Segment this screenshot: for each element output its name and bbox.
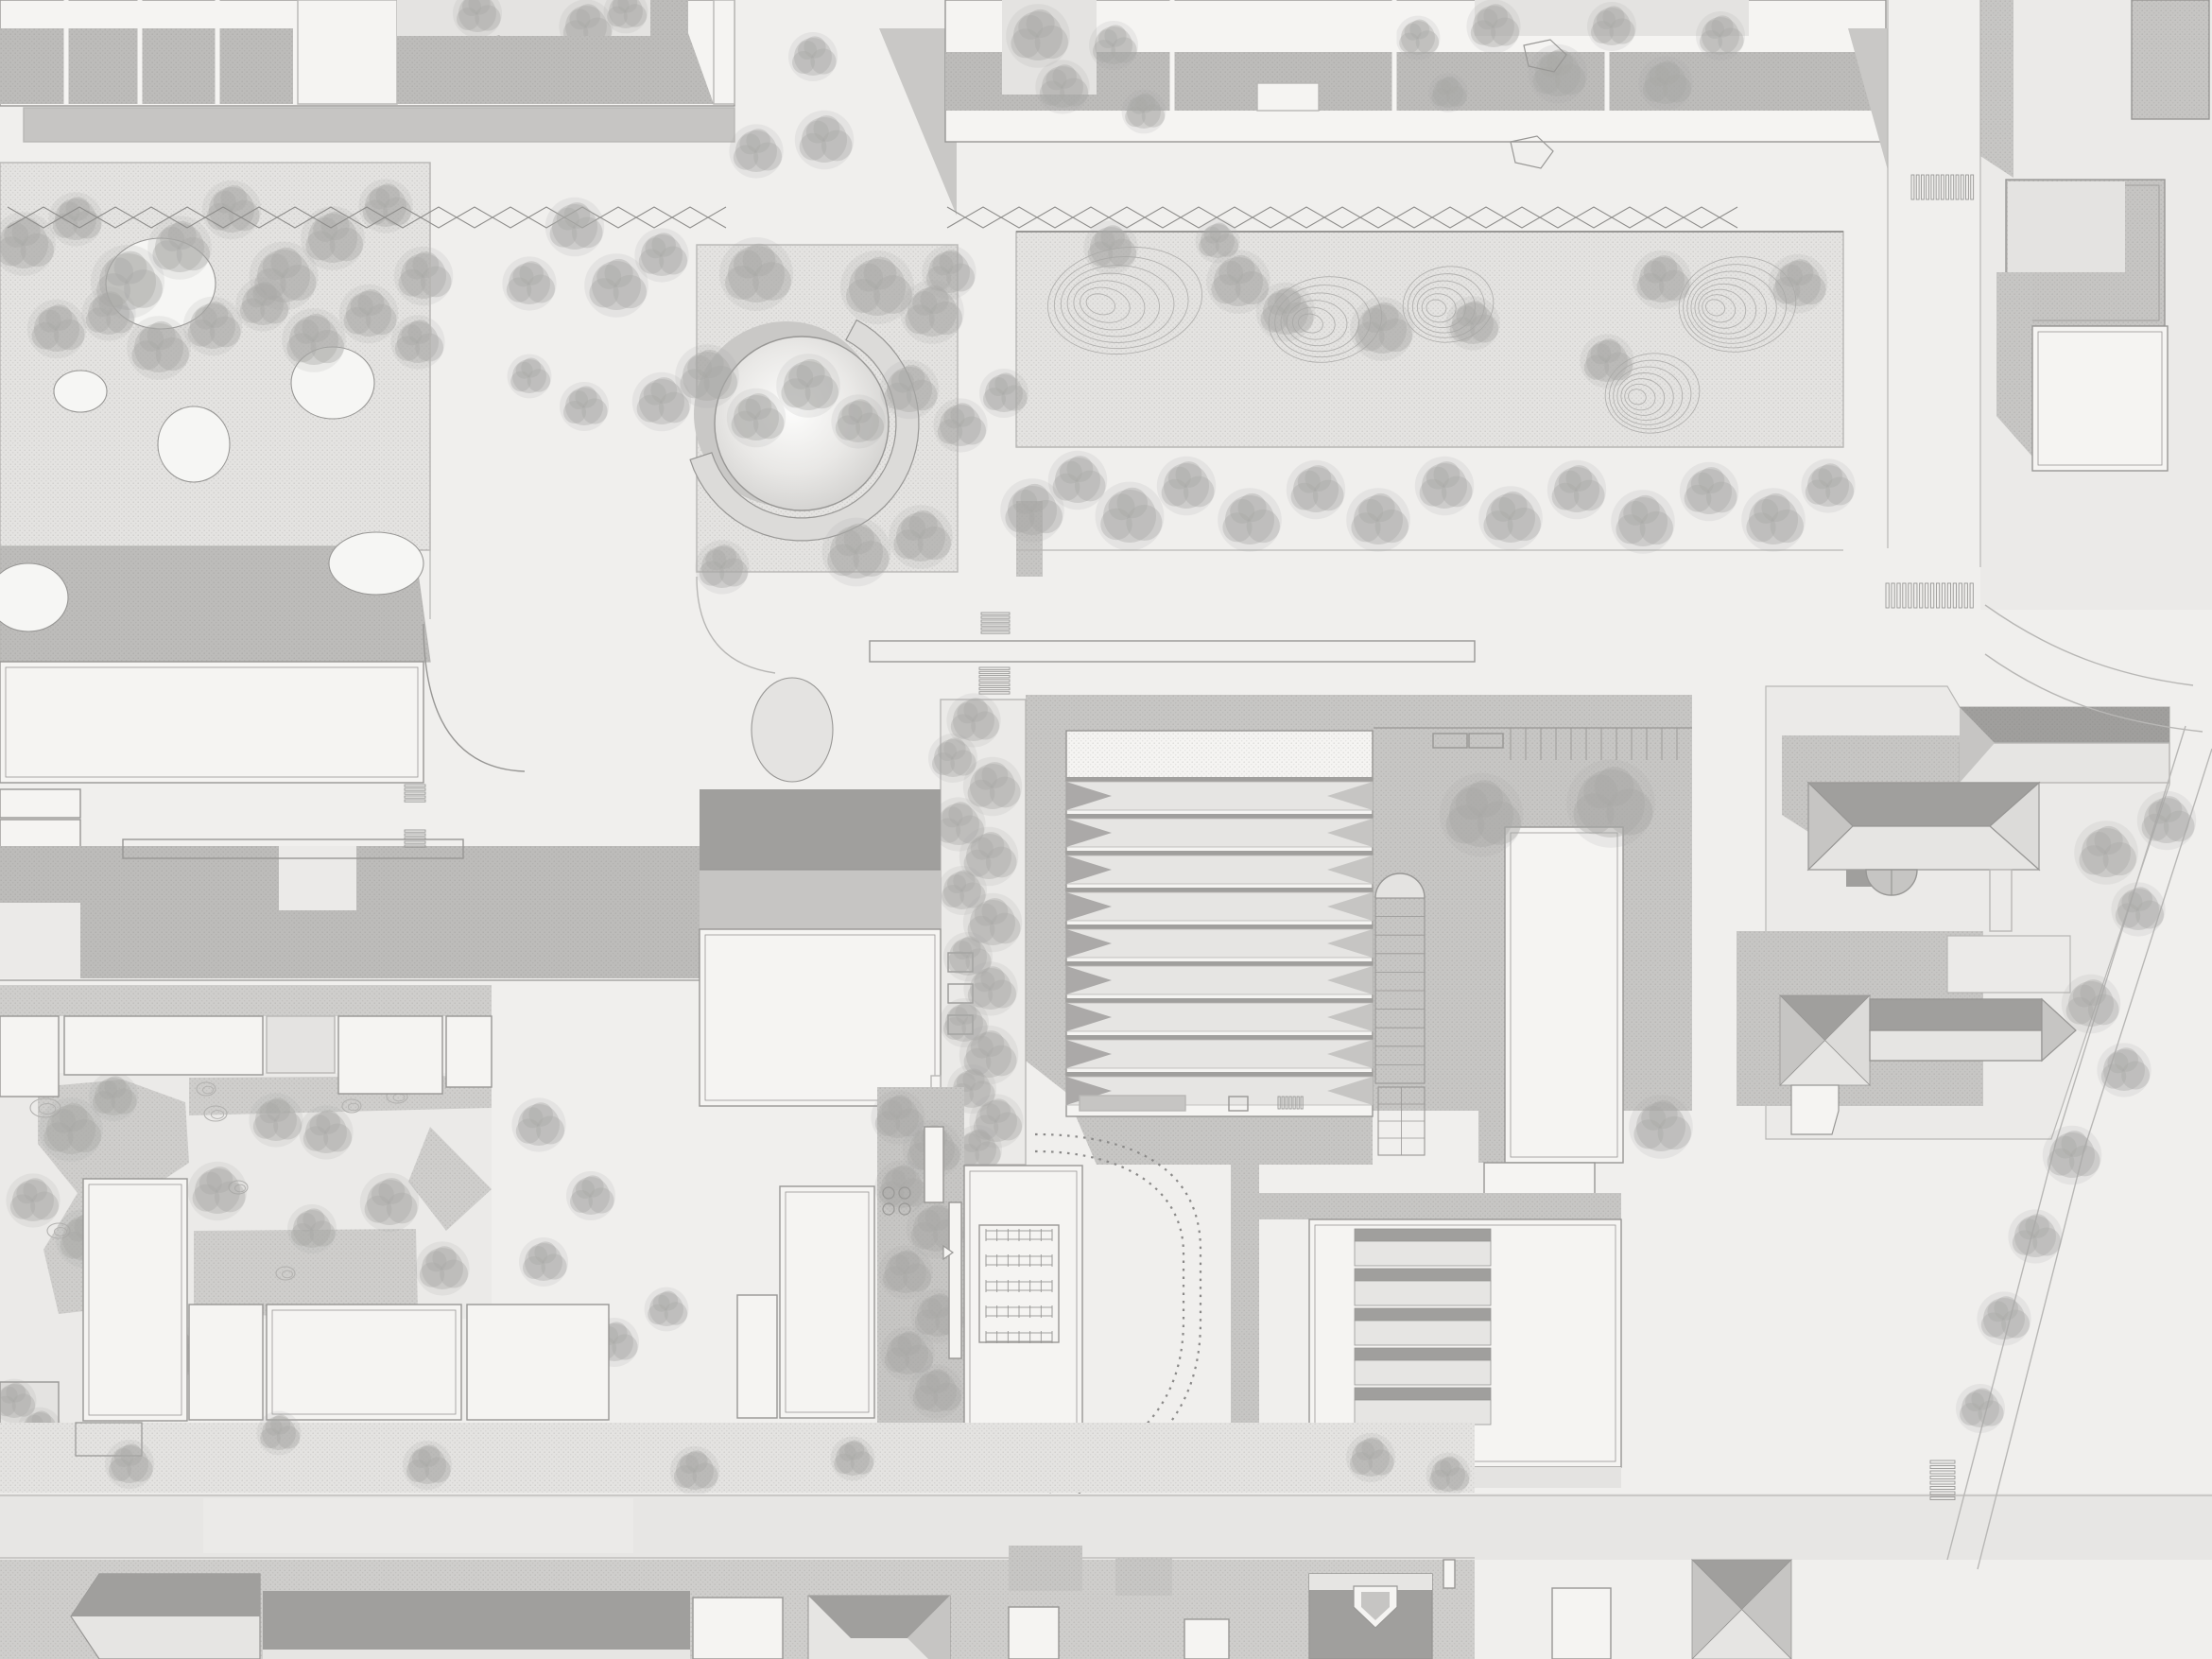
tree-canopy [734,251,762,279]
tree-canopy [974,971,994,992]
tree [1478,486,1543,550]
tree-canopy [1012,490,1037,514]
louver-top-band [1066,731,1373,777]
tree-canopy [971,1036,994,1059]
tree-canopy [979,1103,1000,1124]
tree [1350,297,1414,361]
tree-canopy [1649,65,1669,86]
tree-canopy [1362,308,1387,333]
louver-slat [1066,819,1373,847]
tree [1629,1095,1693,1159]
tree-canopy [425,1251,446,1271]
tree-canopy [942,806,962,827]
tree [1346,1433,1395,1482]
tree-canopy [1456,787,1488,820]
south-center-buildings-rect [964,1166,1082,1435]
tree-canopy [263,253,289,280]
tree [566,1171,615,1220]
tree [188,1162,247,1220]
tree-canopy [139,327,164,352]
tree [299,1105,353,1159]
louver-slat [1066,1040,1373,1068]
upper-left-garden-plaza-ellipse [54,371,107,412]
tree [1547,460,1606,519]
tree-canopy [1046,69,1066,90]
top-building-row-west-rect-texture [397,36,650,104]
top-right-block-rect [2032,326,2168,471]
long-white-slab-building-rect [0,820,80,848]
tree-canopy [2054,1136,2077,1159]
tree [979,369,1028,418]
villa-complex-rect [1960,743,2169,783]
tree-canopy [2107,1052,2128,1073]
tree [645,1287,689,1332]
louver-ridge [1066,1035,1373,1040]
tree [695,540,749,594]
lane-hedge-and-turning-curves-rect-texture [1231,1163,1259,1460]
tree-canopy [975,904,997,926]
long-white-slab-building-rect [0,789,80,818]
tree [390,315,444,369]
tree-canopy [1218,261,1243,285]
tree-canopy [569,9,590,29]
tree-canopy [294,320,319,344]
tree-canopy [1098,29,1117,48]
tree-canopy [1623,501,1648,526]
tree-canopy [512,266,533,286]
tree-canopy [92,296,112,317]
tree-canopy [39,310,61,333]
tree-canopy [836,529,862,556]
tree [394,247,453,305]
southwest-building-rows-rect [0,1016,59,1097]
bottom-building-row-rect [1009,1607,1059,1659]
tree-canopy [1597,10,1616,29]
top-right-block-rect [2008,181,2125,272]
tree-canopy [569,390,588,409]
tree [2062,975,2120,1033]
tree-canopy [1298,471,1321,493]
tree [105,1440,154,1489]
southwest-building-rows-rect [467,1305,609,1420]
tree [831,394,885,448]
pyramid-roof-pavilion [1780,995,1870,1085]
villa-complex-poly [1947,936,2070,993]
tree-canopy [1811,468,1832,489]
tree-canopy [1131,97,1148,114]
tree [1680,462,1738,521]
tree-canopy [16,1183,37,1203]
south-promenade [0,1411,1475,1497]
tree [1096,482,1165,551]
tree [788,32,838,81]
tree-canopy [1268,293,1290,316]
bottom-building-row-rect [693,1598,783,1659]
tree [1196,219,1240,264]
tree-canopy [1356,1442,1374,1460]
tree-canopy [1691,473,1714,495]
site-plan-page [0,0,2212,1659]
bottom-building-row-rect [1443,1560,1455,1588]
tree [1083,220,1137,274]
tree [1956,1384,2005,1433]
tree [235,277,289,331]
louver-slat [1066,966,1373,994]
rooflight-block [1355,1321,1491,1345]
tree [1440,773,1523,856]
top-building-row-middle-rect [1257,83,1319,111]
tree-canopy [199,1172,222,1195]
tree [1396,16,1441,60]
tree [1611,490,1675,554]
tree [1218,488,1282,552]
tree [1048,451,1107,510]
tree-canopy [372,1184,394,1206]
southwest-building-rows-rect [267,1016,335,1073]
tree-canopy [806,121,829,144]
tree [545,198,604,256]
louver-ridge [1066,851,1373,855]
tree-canopy [51,1109,76,1133]
tree-canopy [889,1254,909,1275]
tree-canopy [962,1133,981,1152]
tree [2097,1043,2151,1097]
tree [878,1245,932,1299]
tree [1157,457,1216,515]
central-promenade-rect [0,903,80,978]
tree-canopy [297,1213,316,1232]
striped-roof-building-rect-texture [1257,1193,1621,1219]
south-center-buildings-rect [949,1202,961,1358]
tree-canopy [1435,1460,1452,1478]
tree-canopy [1477,9,1497,29]
tree-canopy [841,404,862,424]
tree [933,398,987,452]
southwest-building-rows-rect [267,1305,461,1420]
tree [560,382,609,431]
tree [1445,296,1499,350]
tree [1428,73,1468,112]
tree-canopy [1,1387,18,1404]
upper-left-garden-plaza-ellipse [158,406,230,482]
bottom-building-row-rect-texture [1009,1546,1082,1591]
tree-canopy [351,295,373,318]
tree-canopy [1109,493,1135,520]
tree [889,505,953,569]
tree [880,360,939,419]
tree-canopy [644,383,666,406]
tree [831,1437,875,1481]
tree-canopy [919,1374,940,1394]
tree-canopy [401,324,422,345]
tree [511,1097,565,1151]
cross-hip-roof-building [1692,1560,1791,1659]
tree-canopy [1426,467,1449,490]
tree [2137,791,2196,850]
tree-canopy [949,1007,968,1026]
tree [1426,1453,1471,1497]
tree [1006,4,1070,68]
tree-canopy [943,407,964,428]
tree-canopy [4,223,28,248]
bottom-building-row-rect [263,1591,690,1650]
hip-roof-building [808,1596,950,1659]
southwest-building-rows-rect [338,1016,442,1094]
tree-canopy [1583,774,1617,808]
tree [634,228,688,282]
villa-complex-rect-texture [1960,707,2169,743]
louver-slat [1066,1003,1373,1031]
bottom-building-row-rect [263,1650,690,1659]
tree [2043,1126,2101,1184]
tree-canopy [214,191,236,214]
tree-canopy [59,201,79,222]
tree [719,237,793,311]
tree-canopy [680,1455,699,1474]
louver-slat [1066,782,1373,810]
southwest-building-rows-rect [64,1016,263,1075]
top-building-row-west-rect [298,0,397,104]
tree-canopy [2086,832,2111,856]
tree-canopy [653,1295,670,1312]
east-slab-building-rect [1505,827,1623,1163]
tree [1529,44,1587,103]
villa-complex-poly [1791,1085,1839,1134]
tree-canopy [687,355,712,380]
tree-canopy [1965,1392,1984,1411]
tree [6,1173,60,1227]
tree-canopy [516,362,533,379]
top-building-row-west-rect [714,0,734,104]
tree-canopy [1018,15,1043,40]
tree [1633,251,1691,309]
tree [360,1173,419,1232]
south-street-rect [203,1498,633,1553]
tree [127,316,191,380]
tree [776,354,840,418]
tree-canopy [406,257,428,280]
tree [1580,334,1633,388]
tree [1587,2,1636,51]
tree [822,518,891,587]
tree-canopy [412,1449,431,1468]
tree [287,1204,337,1253]
louver-hall-block-rect [1080,1096,1185,1111]
south-center-buildings-rect [780,1186,874,1418]
rooflight-block [1355,1241,1491,1266]
tree [1466,0,1520,54]
rooflight-bar [1355,1348,1491,1360]
tree-canopy [891,371,914,393]
tree [282,308,346,372]
tree [89,1072,138,1121]
tree-canopy [1491,497,1515,522]
bottom-building-row-rect-texture [1115,1558,1172,1596]
tree-canopy [1641,1106,1666,1131]
villa-complex-rect [1870,999,2042,1030]
tree-canopy [1436,79,1451,95]
tree-canopy [1060,461,1082,484]
tree-canopy [839,1444,856,1461]
tree-canopy [1780,265,1803,287]
tree [1638,56,1692,110]
tree [1415,457,1474,515]
tree-canopy [921,1298,942,1319]
tree [403,1441,452,1490]
central-promenade-rect [279,846,356,910]
southwest-roof-building-rect [700,929,941,1106]
tree-canopy [2149,802,2171,824]
top-building-row-west-rect [24,108,734,142]
tree [2008,1209,2062,1263]
tree [2111,882,2165,936]
louver-slat [1066,929,1373,958]
louver-slat [1066,855,1373,884]
villa-complex-rect [1990,870,2012,931]
louver-ridge [1066,777,1373,782]
louver-ridge [1066,1072,1373,1077]
louver-ridge [1066,961,1373,966]
tree-canopy [1754,499,1778,524]
tree-canopy [369,188,389,209]
south-center-buildings-rect [737,1295,777,1418]
tree-canopy [2018,1218,2039,1239]
tree-canopy [1405,24,1422,41]
tree-canopy [1204,227,1221,244]
tree-canopy [975,768,997,790]
tree [1256,283,1315,341]
rooflight-bar [1355,1229,1491,1241]
tree-canopy [901,516,925,541]
rooflight-block [1355,1400,1491,1425]
tree-canopy [1358,499,1383,524]
villa-complex-rect [1870,1030,2042,1061]
louvered-roof-building [1066,731,1373,1116]
plan-layers [0,0,2212,1659]
tree-canopy [557,208,579,231]
tree-canopy [953,941,972,959]
tree [183,297,242,355]
tree-canopy [105,258,133,286]
tree-canopy [645,237,665,258]
tree [727,389,786,447]
tree-canopy [259,1102,280,1123]
south-center-buildings-rect [925,1127,943,1202]
southwest-building-rows-rect [446,1016,492,1087]
tree [257,1411,302,1456]
tree-canopy [266,1419,283,1436]
tree [519,1237,568,1287]
tree [358,179,412,233]
tree-canopy [195,307,217,330]
top-building-row-west-rect-texture [0,28,293,104]
rooflight-bar [1355,1308,1491,1321]
upper-left-paved-band-ellipse [329,532,423,595]
tree [415,1241,469,1295]
tree-canopy [309,1115,330,1135]
tree [202,181,261,239]
louver-ridge [1066,888,1373,892]
louver-ridge [1066,998,1373,1003]
bottom-building-row-rect [1552,1588,1611,1659]
tree-canopy [855,264,883,292]
tree-canopy [98,1080,117,1099]
tree-canopy [947,874,966,893]
louver-ridge [1066,925,1373,929]
tree [1696,11,1745,60]
tree-canopy [918,1210,941,1233]
tree-canopy [528,1246,547,1265]
tree-canopy [1590,343,1611,364]
tree [795,111,854,169]
tree-canopy [596,265,621,289]
tree-canopy [522,1107,543,1128]
tree-canopy [739,133,760,154]
tree-canopy [246,286,267,307]
bottom-building-row-rect [1184,1619,1229,1659]
tree-canopy [881,1099,902,1120]
tree [1122,90,1166,134]
southwest-roof-building-rect [700,870,941,929]
rooflight-bar [1355,1269,1491,1281]
bottom-building-row-poly [71,1574,260,1616]
tree-canopy [890,1336,911,1357]
street-junction-curbs-ellipse [752,678,833,782]
tree [1287,460,1345,519]
tree-canopy [1168,467,1191,490]
tree-canopy [705,549,726,570]
tree-canopy [313,217,337,242]
tree [502,256,556,310]
tree-canopy [1987,1301,2008,1322]
rooflight-block [1355,1281,1491,1305]
tree-canopy [1705,20,1724,39]
tree [1089,21,1138,70]
southwest-building-rows-rect [189,1305,263,1420]
central-promenade-rect-texture [0,985,492,1016]
tree-canopy [1559,471,1581,493]
tree [249,1093,302,1147]
louver-ridge [1066,814,1373,819]
tree-canopy [576,1180,595,1199]
tree-canopy [957,702,977,723]
tree [339,285,398,343]
tree [675,344,739,408]
tree-canopy [114,1448,133,1467]
upper-left-paved-band [0,532,430,662]
tree-canopy [971,838,994,860]
tree-canopy [788,365,813,389]
tree [27,300,86,358]
tree [729,124,783,178]
tree [908,1364,962,1418]
south-promenade-rect-texture [0,1423,1475,1493]
tree [670,1446,719,1495]
tree [1741,488,1806,552]
southwest-building-rows-rect [83,1179,187,1421]
site-plan-map [0,0,2212,1659]
tree-canopy [1456,305,1477,326]
tree [1801,458,1855,512]
tree [508,354,552,399]
tree-canopy [798,41,817,60]
tree-canopy [989,377,1008,396]
tree-canopy [738,399,761,422]
tree [1566,759,1655,848]
tree [81,286,135,340]
tree [2074,821,2138,885]
tree-canopy [912,291,937,316]
